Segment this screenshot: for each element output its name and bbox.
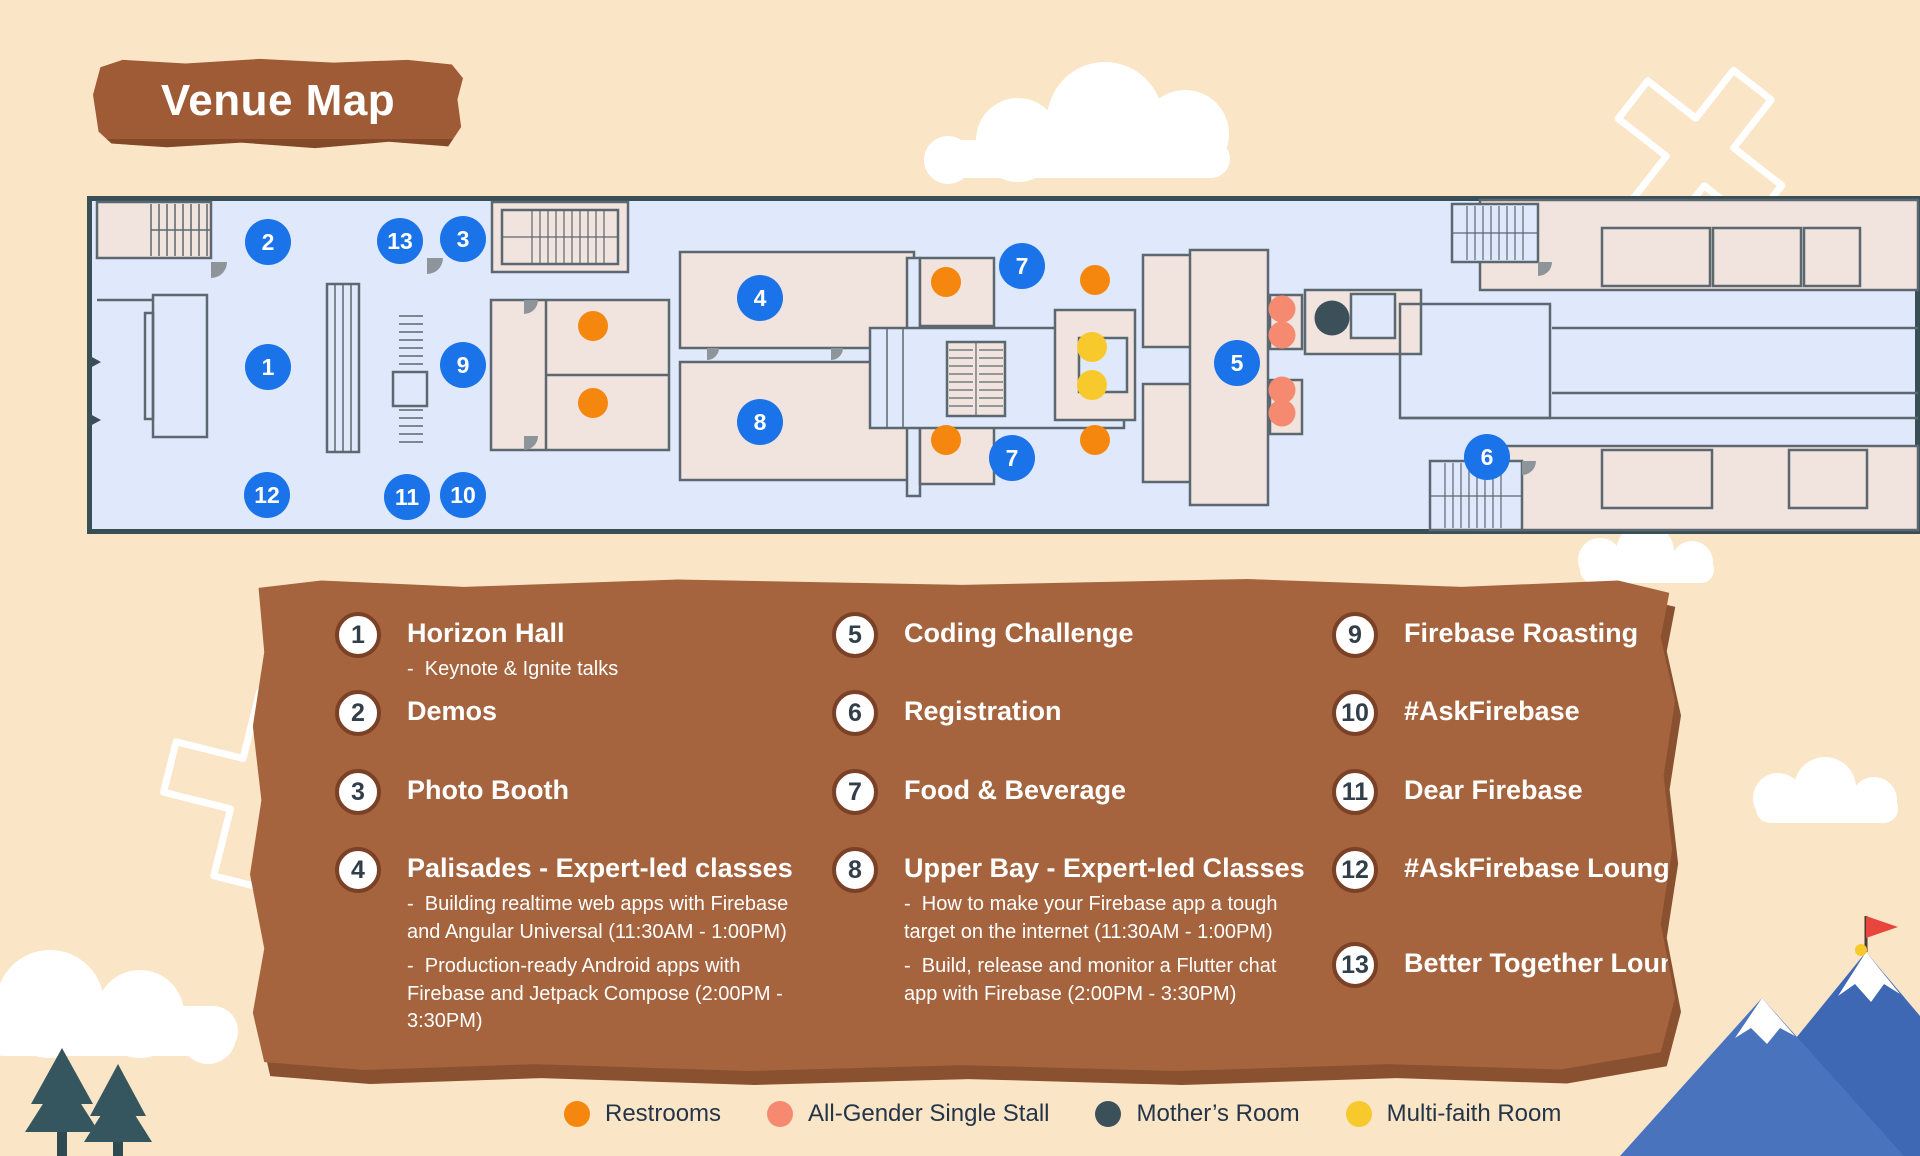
legend-item-10: 10#AskFirebase	[1332, 690, 1580, 736]
facilities-legend-item-allgender: All-Gender Single Stall	[767, 1100, 1049, 1128]
legend-panel: 1Horizon Hall- Keynote & Ignite talks2De…	[250, 578, 1675, 1072]
facilities-legend-label: Restrooms	[605, 1100, 721, 1128]
map-marker-10: 10	[440, 472, 486, 518]
floor-plan	[87, 196, 1920, 534]
legend-item-title: Horizon Hall	[407, 618, 618, 649]
mothers-legend-dot	[1095, 1101, 1121, 1127]
legend-item-number: 6	[832, 690, 878, 736]
cloud-bottom-left	[0, 950, 238, 1064]
legend-item-number: 9	[1332, 612, 1378, 658]
legend-item-5: 5Coding Challenge	[832, 612, 1134, 658]
restroom-legend-dot	[564, 1101, 590, 1127]
allgender-legend-dot	[767, 1101, 793, 1127]
legend-item-title: #AskFirebase Lounge	[1404, 853, 1685, 884]
legend-item-detail: - Keynote & Ignite talks	[407, 656, 618, 684]
legend-item-13: 13Better Together Lounge	[1332, 942, 1708, 988]
legend-item-7: 7Food & Beverage	[832, 769, 1126, 815]
legend-item-title: Registration	[904, 696, 1062, 727]
facilities-legend: RestroomsAll-Gender Single StallMother’s…	[564, 1100, 1561, 1128]
restroom-dot	[1080, 265, 1110, 295]
pine-trees	[25, 1048, 152, 1156]
map-marker-11: 11	[384, 474, 430, 520]
map-marker-13: 13	[377, 218, 423, 264]
legend-item-title: #AskFirebase	[1404, 696, 1580, 727]
cloud-right	[1753, 757, 1898, 823]
legend-item-number: 4	[335, 847, 381, 893]
allgender-dot	[1269, 322, 1296, 349]
legend-item-number: 7	[832, 769, 878, 815]
legend-column-1: 1Horizon Hall- Keynote & Ignite talks2De…	[335, 578, 755, 1072]
map-marker-4: 4	[737, 275, 783, 321]
multifaith-legend-dot	[1346, 1101, 1372, 1127]
map-marker-12: 12	[244, 472, 290, 518]
legend-item-number: 1	[335, 612, 381, 658]
legend-item-detail: - Building realtime web apps with Fireba…	[407, 891, 793, 946]
map-marker-1: 1	[245, 344, 291, 390]
legend-item-number: 12	[1332, 847, 1378, 893]
page-title: Venue Map	[161, 76, 395, 126]
legend-column-2: 5Coding Challenge6Registration7Food & Be…	[832, 578, 1252, 1072]
legend-item-9: 9Firebase Roasting	[1332, 612, 1638, 658]
legend-item-number: 13	[1332, 942, 1378, 988]
legend-item-1: 1Horizon Hall- Keynote & Ignite talks	[335, 612, 618, 684]
cloud-top	[924, 62, 1230, 184]
allgender-dot	[1269, 296, 1296, 323]
map-marker-6: 6	[1464, 434, 1510, 480]
legend-item-detail: - Build, release and monitor a Flutter c…	[904, 953, 1305, 1008]
legend-item-title: Photo Booth	[407, 775, 569, 806]
legend-item-title: Dear Firebase	[1404, 775, 1583, 806]
legend-item-number: 5	[832, 612, 878, 658]
legend-item-title: Demos	[407, 696, 497, 727]
title-banner: Venue Map	[93, 58, 463, 150]
legend-item-title: Firebase Roasting	[1404, 618, 1638, 649]
legend-item-title: Better Together Lounge	[1404, 948, 1708, 979]
legend-item-title: Palisades - Expert-led classes	[407, 853, 793, 884]
map-marker-8: 8	[737, 399, 783, 445]
legend-item-12: 12#AskFirebase Lounge	[1332, 847, 1685, 893]
facilities-legend-label: All-Gender Single Stall	[808, 1100, 1049, 1128]
legend-item-detail: - How to make your Firebase app a tough …	[904, 891, 1305, 946]
map-marker-3: 3	[440, 216, 486, 262]
map-marker-9: 9	[440, 342, 486, 388]
legend-item-4: 4Palisades - Expert-led classes- Buildin…	[335, 847, 793, 1036]
restroom-dot	[931, 425, 961, 455]
map-marker-7: 7	[989, 435, 1035, 481]
facilities-legend-item-restroom: Restrooms	[564, 1100, 721, 1128]
legend-item-11: 11Dear Firebase	[1332, 769, 1583, 815]
multifaith-dot	[1077, 332, 1107, 362]
facilities-legend-label: Mother’s Room	[1136, 1100, 1299, 1128]
map-marker-5: 5	[1214, 340, 1260, 386]
multifaith-dot	[1077, 370, 1107, 400]
legend-item-number: 10	[1332, 690, 1378, 736]
legend-item-number: 3	[335, 769, 381, 815]
legend-item-title: Food & Beverage	[904, 775, 1126, 806]
facilities-legend-label: Multi-faith Room	[1387, 1100, 1562, 1128]
venue-map-page: Venue Map	[0, 0, 1920, 1156]
mothers-dot	[1315, 301, 1350, 336]
legend-item-number: 8	[832, 847, 878, 893]
restroom-dot	[1080, 425, 1110, 455]
legend-item-8: 8Upper Bay - Expert-led Classes- How to …	[832, 847, 1305, 1008]
floor-plan-svg	[87, 196, 1920, 534]
legend-item-6: 6Registration	[832, 690, 1062, 736]
legend-item-title: Upper Bay - Expert-led Classes	[904, 853, 1305, 884]
legend-item-detail: - Production-ready Android apps with Fir…	[407, 953, 793, 1036]
map-marker-2: 2	[245, 219, 291, 265]
legend-item-title: Coding Challenge	[904, 618, 1134, 649]
legend-column-3: 9Firebase Roasting10#AskFirebase11Dear F…	[1332, 578, 1662, 1072]
legend-item-number: 11	[1332, 769, 1378, 815]
facilities-legend-item-mothers: Mother’s Room	[1095, 1100, 1299, 1128]
legend-item-3: 3Photo Booth	[335, 769, 569, 815]
allgender-dot	[1269, 400, 1296, 427]
map-marker-7: 7	[999, 243, 1045, 289]
restroom-dot	[578, 311, 608, 341]
facilities-legend-item-multifaith: Multi-faith Room	[1346, 1100, 1562, 1128]
legend-item-number: 2	[335, 690, 381, 736]
restroom-dot	[578, 388, 608, 418]
legend-item-2: 2Demos	[335, 690, 497, 736]
restroom-dot	[931, 267, 961, 297]
